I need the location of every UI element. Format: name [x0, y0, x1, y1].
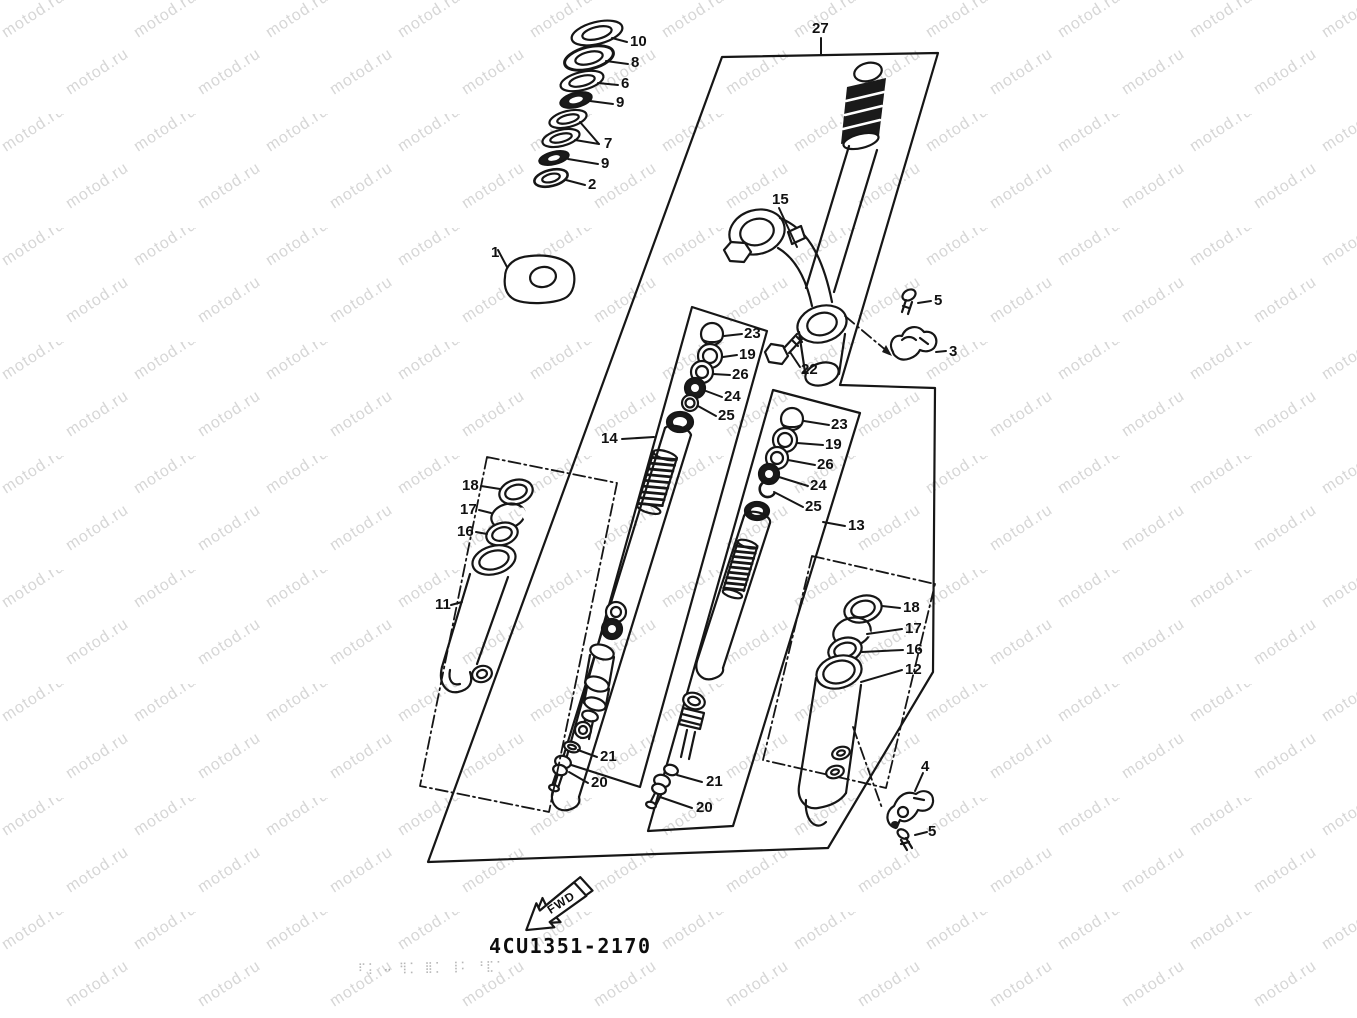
part-callout-23: 23	[744, 325, 761, 342]
part-callout-26: 26	[817, 456, 834, 473]
part-callout-16: 16	[906, 641, 923, 658]
part-callout-17: 17	[460, 501, 477, 518]
part-callout-18: 18	[462, 477, 479, 494]
part-callout-15: 15	[772, 191, 789, 208]
part-callout-22: 22	[801, 361, 818, 378]
part-callout-20: 20	[696, 799, 713, 816]
part-callout-18: 18	[903, 599, 920, 616]
part-callout-2: 2	[588, 176, 596, 193]
part-callout-24: 24	[724, 388, 741, 405]
part-callout-12: 12	[905, 661, 922, 678]
faint-stamp: ⠏⡅ ⠤ ⢻⡁ ⣿⡁ ⢸⠅ ⠘⣏⠁	[358, 959, 506, 975]
part-callout-27: 27	[812, 20, 829, 37]
part-callout-26: 26	[732, 366, 749, 383]
part-callout-8: 8	[631, 54, 639, 71]
part-callout-7: 7	[604, 135, 612, 152]
part-callout-16: 16	[457, 523, 474, 540]
watermark-layer	[0, 0, 1357, 1018]
part-callout-14: 14	[601, 430, 618, 447]
part-number: 4CU1351-2170	[489, 934, 652, 958]
part-callout-1: 1	[491, 244, 499, 261]
part-callout-5: 5	[934, 292, 942, 309]
part-callout-5: 5	[928, 823, 936, 840]
part-callout-13: 13	[848, 517, 865, 534]
part-callout-19: 19	[739, 346, 756, 363]
part-callout-21: 21	[600, 748, 617, 765]
part-callout-6: 6	[621, 75, 629, 92]
part-callout-21: 21	[706, 773, 723, 790]
part-callout-25: 25	[805, 498, 822, 515]
fork-exploded-diagram: motod.ru motod.ru	[0, 0, 1357, 1018]
part-callout-3: 3	[949, 343, 957, 360]
part-1-guide-plate	[505, 256, 575, 304]
part-callout-9: 9	[616, 94, 624, 111]
part-callout-10: 10	[630, 33, 647, 50]
part-callout-19: 19	[825, 436, 842, 453]
part-callout-20: 20	[591, 774, 608, 791]
parts-diagram-page: motod.ru motod.ru	[0, 0, 1357, 1018]
part-callout-24: 24	[810, 477, 827, 494]
part-callout-23: 23	[831, 416, 848, 433]
part-callout-9: 9	[601, 155, 609, 172]
part-callout-4: 4	[921, 758, 930, 775]
part-callout-25: 25	[718, 407, 735, 424]
part-callout-17: 17	[905, 620, 922, 637]
part-callout-11: 11	[435, 596, 451, 613]
